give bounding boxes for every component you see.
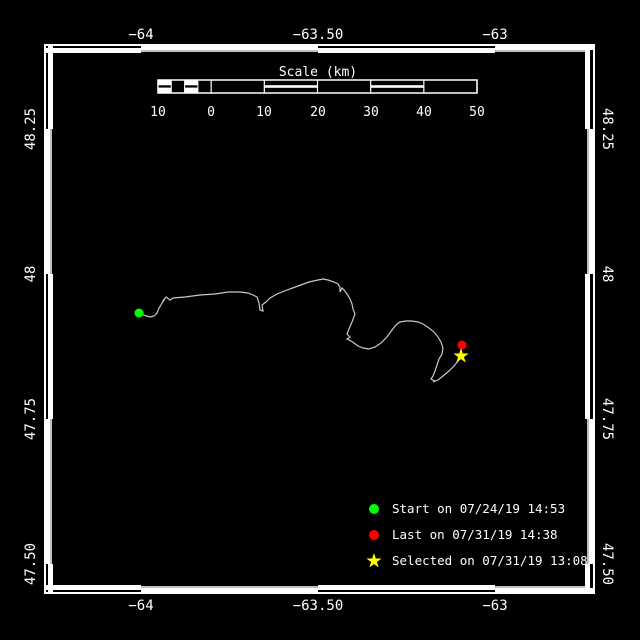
scale-bar-graphic xyxy=(157,80,477,93)
legend-item-start[interactable]: Start on 07/24/19 14:53 xyxy=(369,501,565,516)
scale-tick-label: 50 xyxy=(469,105,485,120)
marker-start[interactable] xyxy=(135,309,144,318)
circle-icon xyxy=(369,530,379,540)
lon-label-top: −63 xyxy=(482,27,507,43)
lat-label-left: 48 xyxy=(23,266,39,283)
scale-tick-label: 40 xyxy=(416,105,432,120)
legend-label: Start on 07/24/19 14:53 xyxy=(392,501,565,516)
lat-label-right: 48 xyxy=(599,266,615,283)
scale-tick-label: 10 xyxy=(150,105,166,120)
circle-icon xyxy=(369,504,379,514)
lat-label-right: 48.25 xyxy=(599,108,615,150)
scale-tick-label: 0 xyxy=(207,105,215,120)
lon-label-top: −63.50 xyxy=(293,27,344,43)
legend-item-selected[interactable]: Selected on 07/31/19 13:08 xyxy=(366,553,587,568)
legend-label: Last on 07/31/19 14:38 xyxy=(392,527,558,542)
legend-item-last[interactable]: Last on 07/31/19 14:38 xyxy=(369,527,558,542)
scale-bar-title: Scale (km) xyxy=(279,65,357,80)
scale-tick-label: 30 xyxy=(363,105,379,120)
lon-label-top: −64 xyxy=(128,27,153,43)
scale-tick-label: 10 xyxy=(256,105,272,120)
lon-label-bottom: −64 xyxy=(128,598,153,614)
lat-label-right: 47.50 xyxy=(599,543,615,585)
lat-label-left: 47.50 xyxy=(23,543,39,585)
legend: Start on 07/24/19 14:53 Last on 07/31/19… xyxy=(366,501,587,568)
map-background xyxy=(0,0,640,640)
lat-label-right: 47.75 xyxy=(599,398,615,440)
lat-label-left: 47.75 xyxy=(23,398,39,440)
marker-last[interactable] xyxy=(458,341,467,350)
lon-label-bottom: −63 xyxy=(482,598,507,614)
legend-label: Selected on 07/31/19 13:08 xyxy=(392,553,588,568)
map-canvas[interactable]: Scale (km) 10 0 10 20 30 40 50 −64 −63.5… xyxy=(0,0,640,640)
lon-label-bottom: −63.50 xyxy=(293,598,344,614)
lat-label-left: 48.25 xyxy=(23,108,39,150)
scale-tick-label: 20 xyxy=(310,105,326,120)
